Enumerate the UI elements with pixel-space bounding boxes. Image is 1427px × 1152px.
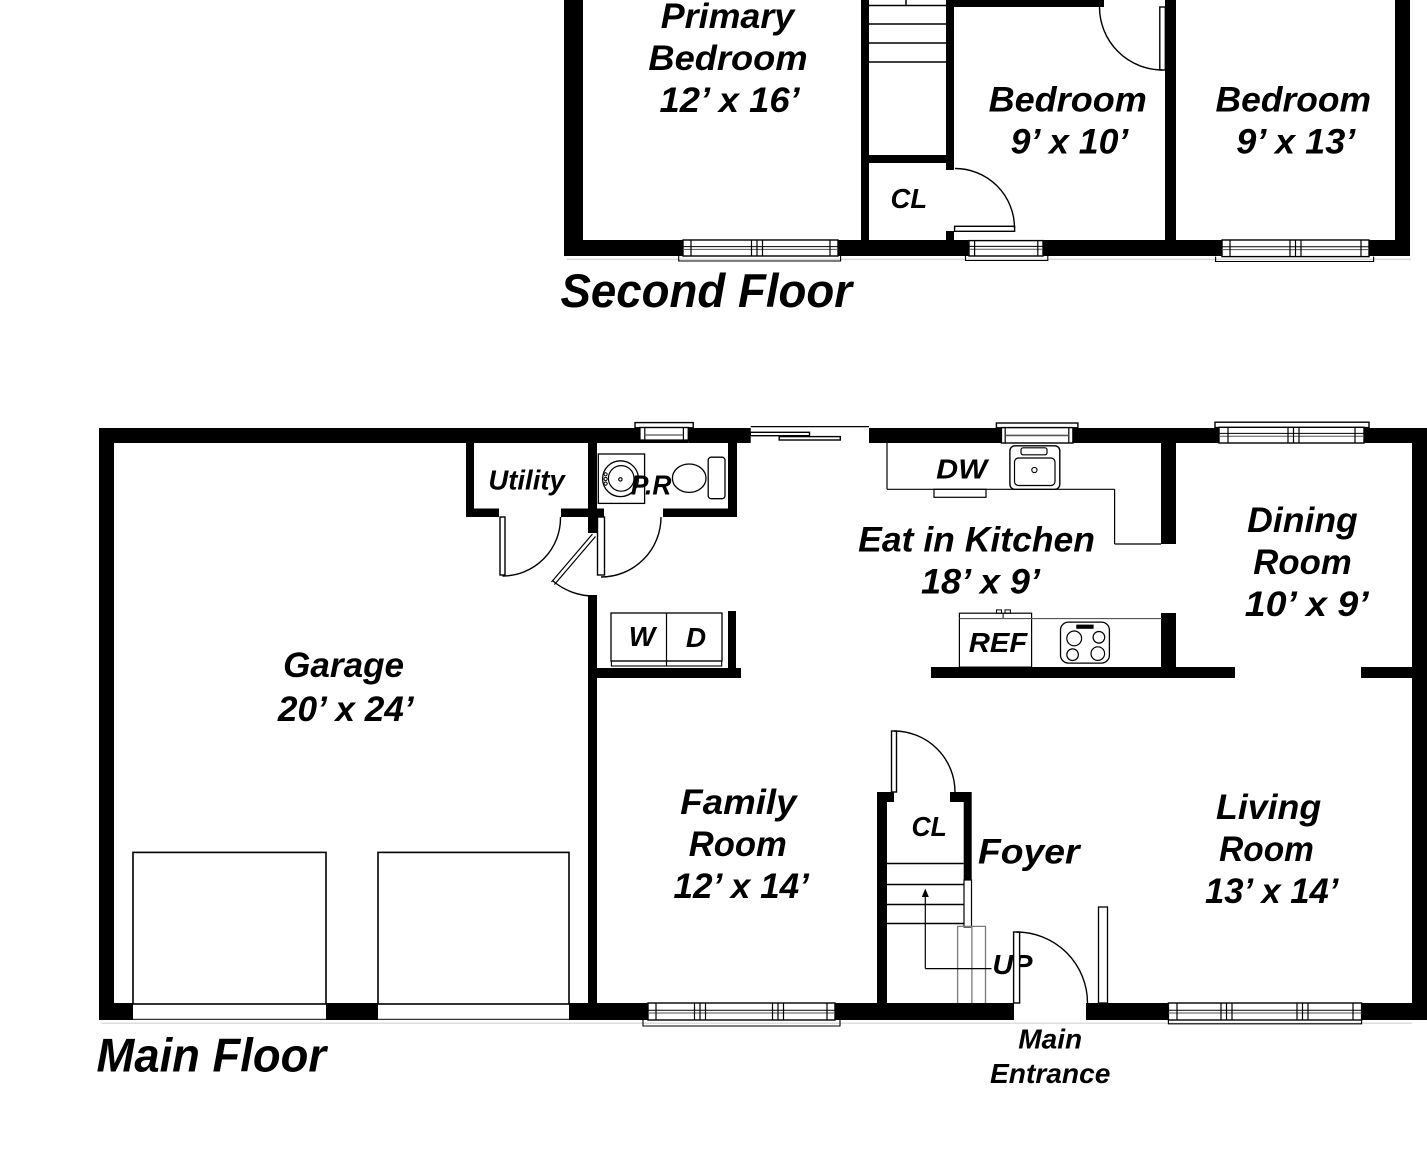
svg-text:CL: CL xyxy=(891,183,928,214)
svg-text:D: D xyxy=(686,622,706,653)
svg-text:13’ x 14’: 13’ x 14’ xyxy=(1205,872,1340,911)
svg-text:Second Floor: Second Floor xyxy=(561,265,855,318)
svg-text:Eat in Kitchen: Eat in Kitchen xyxy=(858,521,1095,560)
svg-text:9’ x 13’: 9’ x 13’ xyxy=(1236,123,1356,162)
svg-text:10’ x 9’: 10’ x 9’ xyxy=(1245,585,1370,624)
svg-text:9’ x 10’: 9’ x 10’ xyxy=(1011,123,1130,162)
svg-text:Living: Living xyxy=(1216,788,1321,827)
svg-text:Main: Main xyxy=(1018,1024,1082,1055)
svg-text:DW: DW xyxy=(936,454,990,485)
svg-text:Garage: Garage xyxy=(283,646,404,685)
svg-text:UP: UP xyxy=(992,949,1032,980)
svg-text:Room: Room xyxy=(1253,543,1351,582)
svg-text:Room: Room xyxy=(689,825,787,864)
svg-text:Utility: Utility xyxy=(488,464,566,495)
svg-text:12’ x 16’: 12’ x 16’ xyxy=(660,81,801,120)
svg-text:CL: CL xyxy=(912,811,947,842)
svg-text:W: W xyxy=(629,621,658,652)
svg-text:REF: REF xyxy=(969,627,1028,658)
svg-text:Primary: Primary xyxy=(661,0,796,36)
svg-text:18’ x 9’: 18’ x 9’ xyxy=(921,563,1041,602)
svg-text:Room: Room xyxy=(1219,830,1314,869)
svg-text:P.R: P.R xyxy=(631,470,672,501)
svg-text:Entrance: Entrance xyxy=(990,1058,1110,1089)
svg-text:Bedroom: Bedroom xyxy=(989,81,1147,120)
svg-text:Bedroom: Bedroom xyxy=(1216,81,1372,120)
svg-text:Dining: Dining xyxy=(1247,501,1358,540)
svg-text:12’ x 14’: 12’ x 14’ xyxy=(674,867,811,906)
svg-text:Foyer: Foyer xyxy=(978,833,1082,872)
svg-text:Bedroom: Bedroom xyxy=(648,39,807,78)
svg-text:20’ x 24’: 20’ x 24’ xyxy=(277,690,415,729)
svg-text:Main Floor: Main Floor xyxy=(97,1030,329,1083)
svg-text:Family: Family xyxy=(680,783,798,822)
